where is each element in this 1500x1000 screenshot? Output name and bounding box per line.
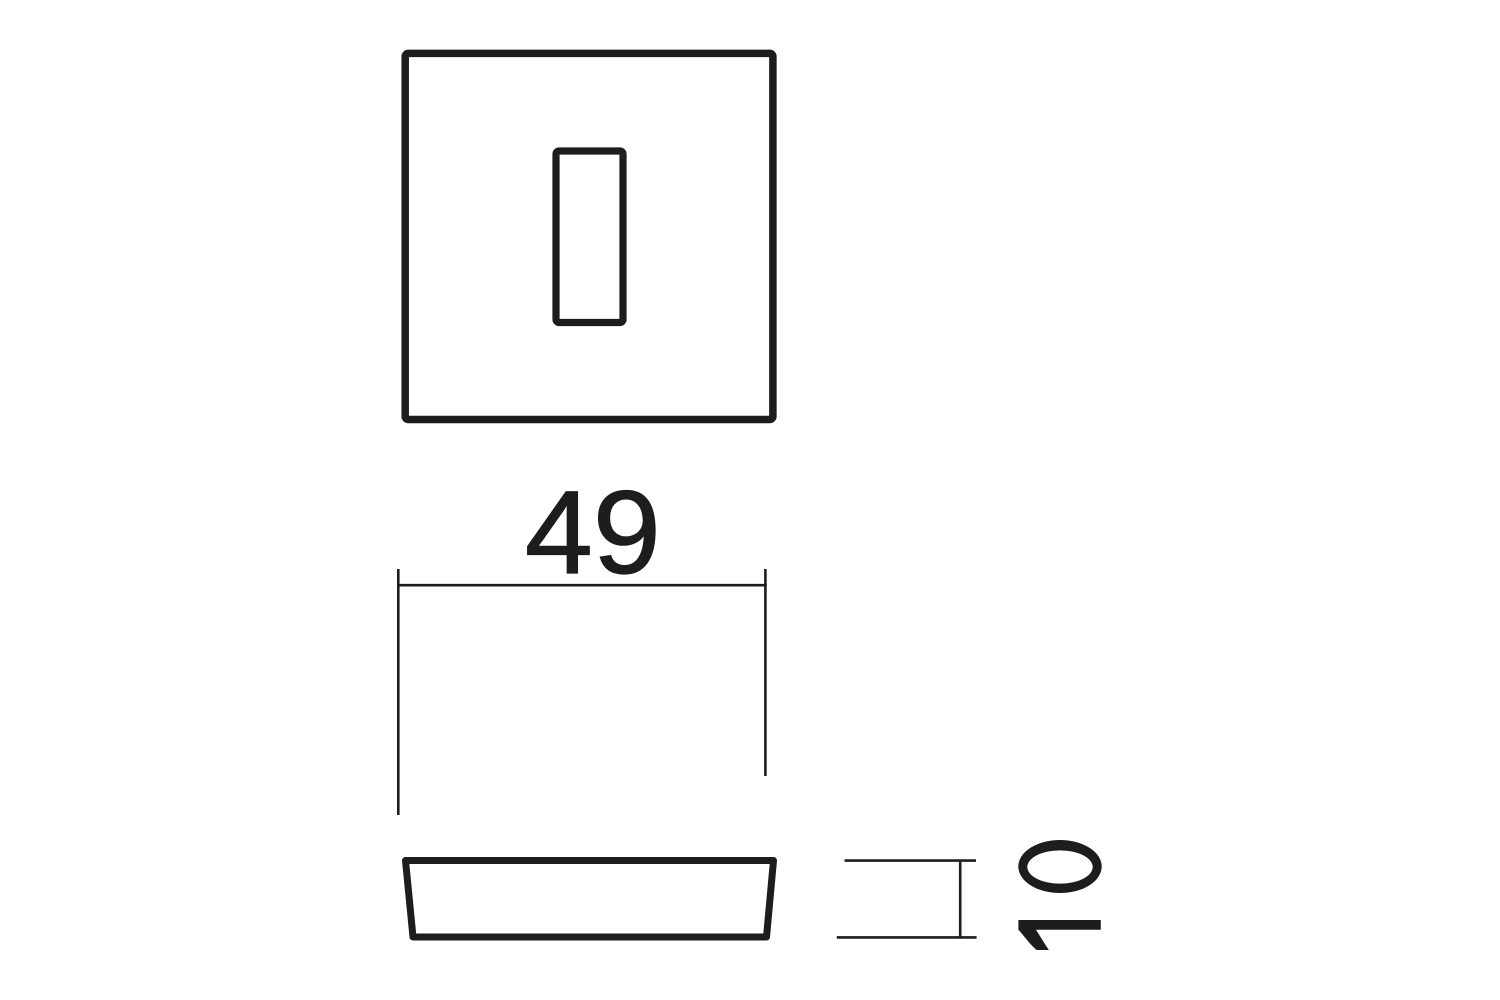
svg-text:49: 49 <box>525 467 661 599</box>
